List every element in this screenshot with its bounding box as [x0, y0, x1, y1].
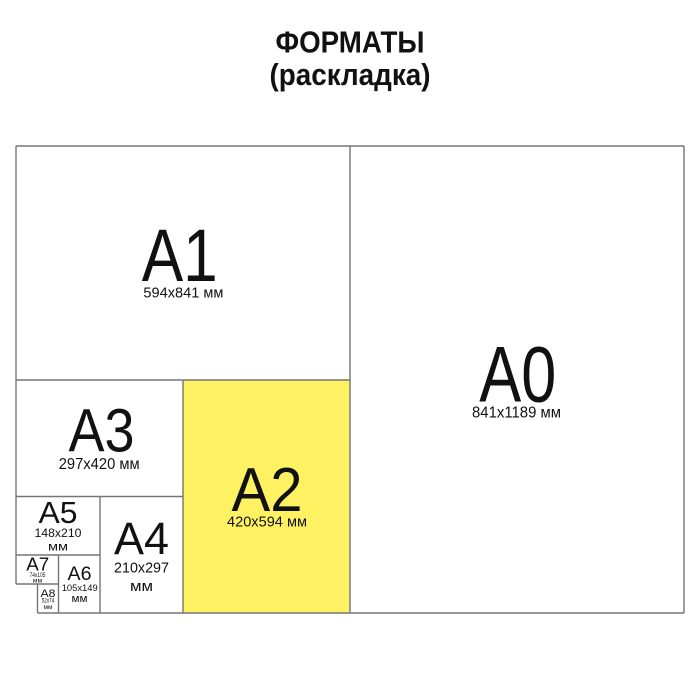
svg-text:A6: A6: [68, 564, 92, 585]
svg-text:841x1189 мм: 841x1189 мм: [472, 404, 561, 421]
svg-text:52x74: 52x74: [42, 599, 55, 605]
svg-text:мм: мм: [44, 605, 53, 611]
svg-text:ФОРМАТЫ: ФОРМАТЫ: [276, 25, 425, 60]
svg-text:A3: A3: [69, 397, 135, 465]
svg-text:148x210: 148x210: [35, 526, 82, 540]
svg-text:A4: A4: [114, 513, 169, 564]
svg-text:(раскладка): (раскладка): [270, 57, 431, 92]
svg-text:297x420 мм: 297x420 мм: [59, 456, 140, 473]
svg-text:594x841 мм: 594x841 мм: [143, 285, 223, 302]
svg-text:мм: мм: [33, 577, 43, 584]
svg-text:мм: мм: [72, 593, 88, 605]
svg-text:A5: A5: [39, 495, 78, 530]
svg-text:210x297: 210x297: [114, 560, 169, 577]
svg-text:мм: мм: [130, 579, 153, 595]
svg-text:420x594 мм: 420x594 мм: [227, 514, 307, 531]
svg-text:мм: мм: [48, 540, 68, 554]
